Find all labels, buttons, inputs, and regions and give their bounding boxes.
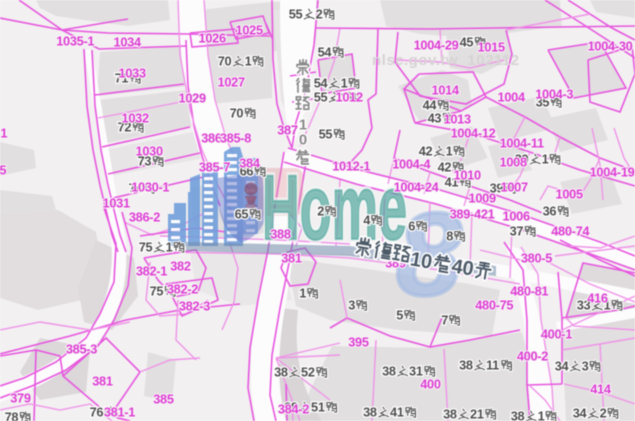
- svg-text:414: 414: [590, 382, 612, 397]
- svg-text:1012-1: 1012-1: [332, 159, 370, 174]
- svg-text:1030: 1030: [136, 144, 163, 159]
- svg-text:381: 381: [281, 251, 302, 266]
- svg-text:38: 38: [511, 409, 525, 421]
- svg-text:2: 2: [316, 7, 323, 22]
- svg-text:45: 45: [460, 35, 474, 50]
- svg-text:54: 54: [314, 76, 329, 91]
- svg-text:389-421: 389-421: [450, 207, 495, 222]
- svg-text:1: 1: [341, 76, 348, 91]
- svg-text:76: 76: [90, 405, 104, 420]
- svg-text:400: 400: [420, 377, 441, 392]
- svg-text:1: 1: [538, 409, 545, 421]
- svg-text:480-81: 480-81: [510, 284, 548, 299]
- svg-text:1004-29: 1004-29: [414, 38, 459, 53]
- svg-text:52: 52: [301, 365, 315, 380]
- svg-text:1: 1: [245, 54, 252, 69]
- svg-text:10: 10: [409, 248, 434, 273]
- svg-text:1004-11: 1004-11: [500, 136, 544, 151]
- svg-text:51: 51: [311, 400, 325, 415]
- svg-text:38: 38: [363, 405, 377, 420]
- svg-text:75: 75: [139, 240, 153, 255]
- svg-text:0: 0: [299, 131, 307, 148]
- svg-text:70: 70: [230, 106, 244, 121]
- svg-text:1032: 1032: [122, 111, 149, 126]
- svg-text:386-2: 386-2: [129, 210, 160, 225]
- svg-text:1004-24: 1004-24: [394, 180, 440, 195]
- svg-text:1: 1: [299, 286, 306, 301]
- svg-text:1025: 1025: [236, 23, 263, 38]
- svg-text:54: 54: [318, 45, 333, 60]
- svg-text:2: 2: [600, 406, 607, 421]
- svg-text:1: 1: [446, 144, 453, 159]
- svg-text:382-1: 382-1: [136, 264, 167, 279]
- svg-text:385-7: 385-7: [199, 160, 230, 175]
- svg-text:1009: 1009: [469, 191, 496, 206]
- svg-text:21: 21: [470, 407, 484, 421]
- svg-text:78: 78: [5, 410, 19, 421]
- svg-text:1014: 1014: [432, 83, 460, 98]
- svg-text:400-2: 400-2: [517, 349, 548, 364]
- svg-text:1006: 1006: [503, 209, 530, 224]
- svg-text:55: 55: [319, 127, 333, 142]
- svg-text:11: 11: [486, 358, 499, 373]
- svg-text:7: 7: [441, 313, 448, 328]
- svg-text:1004-19: 1004-19: [590, 165, 635, 180]
- svg-text:38: 38: [274, 365, 288, 380]
- svg-text:480-75: 480-75: [475, 298, 513, 313]
- svg-text:1010: 1010: [454, 168, 481, 183]
- svg-text:384-2: 384-2: [278, 402, 309, 417]
- svg-text:37: 37: [510, 224, 524, 239]
- svg-text:1: 1: [166, 240, 173, 255]
- svg-text:2: 2: [317, 204, 324, 219]
- svg-text:379: 379: [10, 391, 31, 406]
- svg-text:384: 384: [239, 156, 261, 171]
- svg-text:385-3: 385-3: [66, 342, 97, 357]
- svg-text:38: 38: [382, 364, 396, 379]
- svg-text:480-74: 480-74: [551, 224, 590, 239]
- svg-text:8: 8: [446, 229, 453, 244]
- svg-text:1030-1: 1030-1: [131, 180, 169, 195]
- svg-text:1004-3: 1004-3: [535, 87, 573, 102]
- svg-text:1: 1: [542, 152, 549, 167]
- svg-text:55: 55: [314, 90, 328, 105]
- svg-text:70: 70: [218, 54, 232, 69]
- svg-text:65: 65: [235, 207, 249, 222]
- svg-text:1013: 1013: [444, 112, 471, 127]
- svg-text:382-2: 382-2: [167, 282, 198, 297]
- svg-text:1007: 1007: [501, 180, 528, 195]
- svg-text:386: 386: [201, 131, 222, 146]
- svg-text:381-1: 381-1: [104, 405, 135, 420]
- svg-text:43: 43: [428, 111, 442, 126]
- svg-text:385-8: 385-8: [220, 131, 251, 146]
- svg-text:1034: 1034: [114, 35, 142, 50]
- svg-text:395: 395: [348, 335, 369, 350]
- svg-text:4: 4: [363, 213, 371, 228]
- svg-text:385: 385: [153, 392, 174, 407]
- svg-text:5: 5: [0, 163, 6, 178]
- svg-text:1012: 1012: [336, 90, 363, 105]
- svg-text:6: 6: [408, 219, 415, 234]
- svg-text:38: 38: [443, 407, 457, 421]
- svg-text:388: 388: [270, 227, 291, 242]
- svg-text:40: 40: [450, 255, 475, 280]
- svg-text:1035-1: 1035-1: [56, 34, 94, 49]
- svg-text:1: 1: [0, 126, 7, 141]
- svg-text:387: 387: [277, 123, 298, 138]
- svg-text:1033: 1033: [119, 66, 146, 81]
- svg-text:75: 75: [150, 284, 164, 299]
- svg-text:36: 36: [543, 204, 557, 219]
- svg-text:1004-12: 1004-12: [451, 126, 496, 141]
- svg-text:34: 34: [573, 406, 588, 421]
- svg-text:400-1: 400-1: [541, 327, 572, 342]
- svg-text:34: 34: [555, 359, 570, 374]
- svg-text:1015: 1015: [478, 40, 505, 55]
- svg-text:1027: 1027: [218, 75, 245, 90]
- svg-text:1029: 1029: [179, 91, 206, 106]
- svg-text:382-3: 382-3: [179, 299, 210, 314]
- svg-text:1031: 1031: [103, 196, 130, 211]
- svg-text:41: 41: [390, 405, 404, 420]
- svg-text:3: 3: [348, 298, 355, 313]
- svg-text:42: 42: [438, 160, 452, 175]
- svg-text:1008: 1008: [500, 155, 527, 170]
- svg-text:3: 3: [582, 359, 589, 374]
- svg-text:1004: 1004: [498, 90, 526, 105]
- svg-text:381: 381: [92, 374, 113, 389]
- svg-text:5: 5: [396, 308, 403, 323]
- svg-text:1004-4: 1004-4: [392, 157, 431, 172]
- svg-text:382: 382: [170, 259, 191, 274]
- svg-text:1026: 1026: [199, 31, 226, 46]
- svg-text:55: 55: [289, 7, 303, 22]
- svg-text:1005: 1005: [556, 187, 583, 202]
- svg-text:380-5: 380-5: [521, 251, 552, 266]
- svg-text:416: 416: [587, 291, 608, 306]
- svg-text:38: 38: [459, 358, 473, 373]
- svg-text:1004-30: 1004-30: [588, 39, 633, 54]
